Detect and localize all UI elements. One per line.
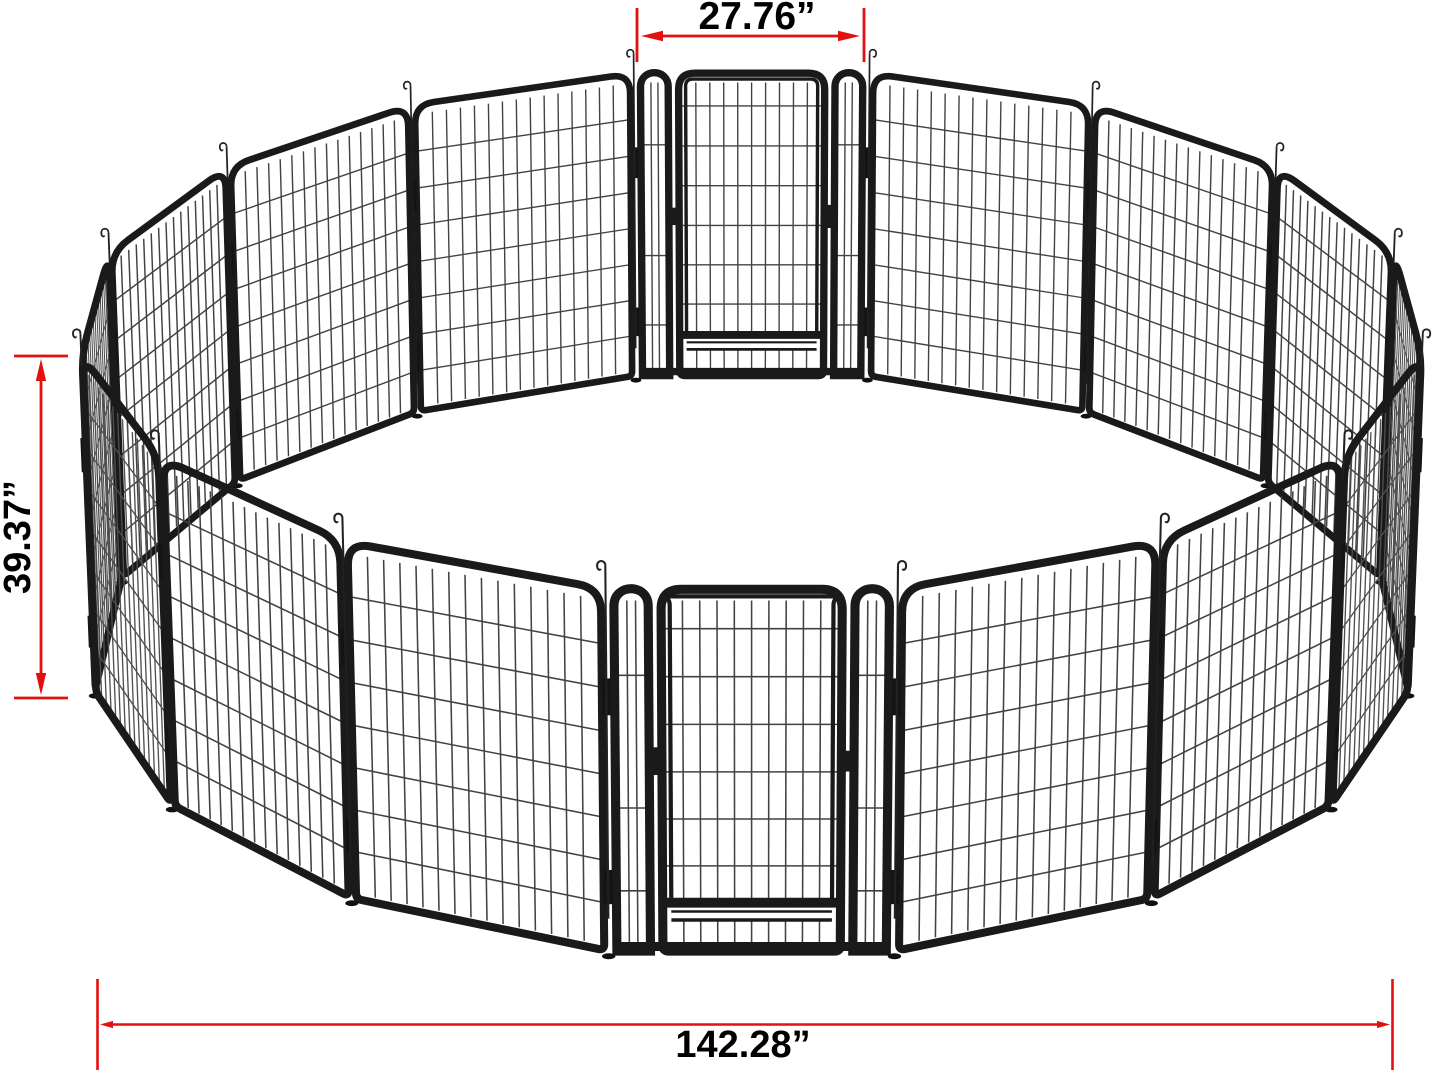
svg-text:142.28”: 142.28” <box>675 1024 810 1066</box>
svg-text:39.37”: 39.37” <box>0 480 39 594</box>
svg-text:27.76”: 27.76” <box>698 0 815 38</box>
